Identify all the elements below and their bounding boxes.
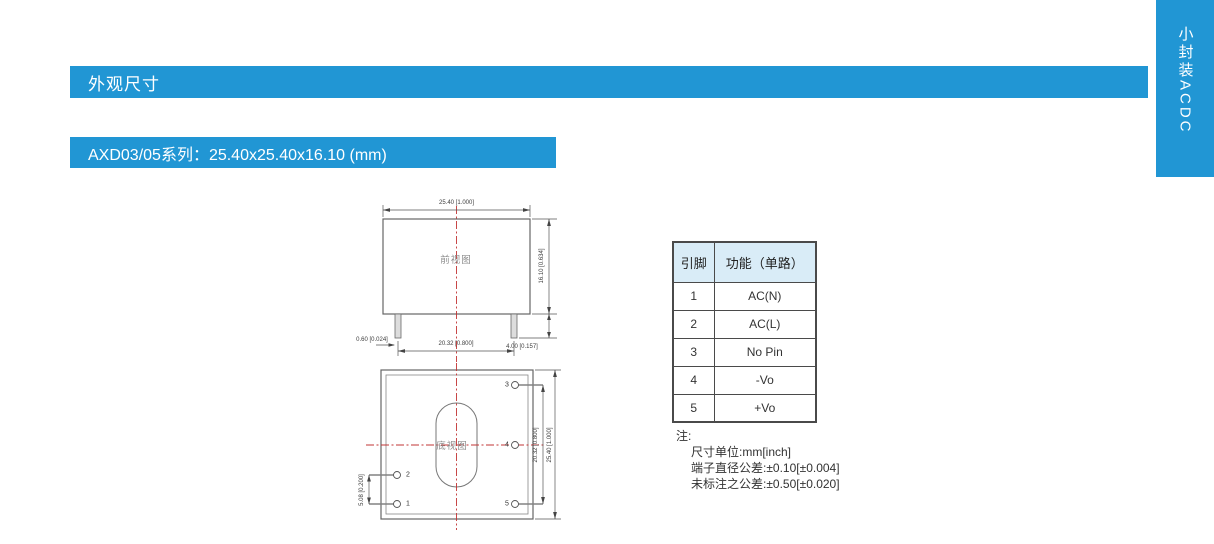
series-title: AXD03/05系列：25.40x25.40x16.10 (mm) bbox=[88, 141, 387, 165]
table-row: 2 AC(L) bbox=[673, 310, 816, 338]
datasheet-page: 外观尺寸 AXD03/05系列：25.40x25.40x16.10 (mm) 小… bbox=[0, 0, 1214, 544]
pin-5-number: 5 bbox=[505, 501, 509, 508]
arrowhead bbox=[389, 343, 396, 347]
series-header-bar: AXD03/05系列：25.40x25.40x16.10 (mm) bbox=[70, 137, 556, 168]
function-cell: AC(N) bbox=[714, 282, 816, 310]
dim-front-pin-span: 20.32 [0.800] bbox=[438, 341, 473, 347]
front-view-group bbox=[376, 205, 557, 362]
dim-front-height: 16.10 [0.634] bbox=[539, 248, 545, 283]
section-header-bar: 外观尺寸 bbox=[70, 66, 1148, 98]
front-view-label: 前视图 bbox=[440, 252, 472, 266]
side-tab-label: 小封装ACDC bbox=[1175, 26, 1196, 177]
function-column-header: 功能（单路） bbox=[714, 242, 816, 282]
arrowhead bbox=[547, 307, 551, 314]
table-row: 3 No Pin bbox=[673, 338, 816, 366]
arrowhead bbox=[547, 219, 551, 226]
pin-column-header: 引脚 bbox=[673, 242, 714, 282]
function-cell: +Vo bbox=[714, 394, 816, 422]
front-view-pin-left bbox=[395, 314, 401, 338]
arrowhead bbox=[547, 314, 551, 320]
pin-cell: 4 bbox=[673, 366, 714, 394]
pin-5-circle bbox=[512, 501, 519, 508]
notes-title: 注: bbox=[676, 428, 840, 444]
arrowhead bbox=[367, 498, 371, 505]
pin-cell: 1 bbox=[673, 282, 714, 310]
function-cell: No Pin bbox=[714, 338, 816, 366]
pin-1-number: 1 bbox=[406, 501, 410, 508]
arrowhead bbox=[523, 208, 530, 212]
arrowhead bbox=[541, 385, 545, 392]
front-view-dim-top bbox=[383, 205, 530, 217]
dim-bottom-body: 25.40 [1.000] bbox=[547, 427, 553, 462]
table-header-row: 引脚 功能（单路） bbox=[673, 242, 816, 282]
function-cell: -Vo bbox=[714, 366, 816, 394]
dim-bottom-pin-offset: 5.08 [0.200] bbox=[359, 474, 365, 506]
pin-4-circle bbox=[512, 442, 519, 449]
pin-3-number: 3 bbox=[505, 382, 509, 389]
note-line: 未标注之公差:±0.50[±0.020] bbox=[691, 476, 840, 492]
bottom-view-label: 底视图 bbox=[436, 438, 468, 452]
dim-front-pin-diameter: 0.60 [0.024] bbox=[356, 337, 388, 343]
pin-cell: 5 bbox=[673, 394, 714, 422]
side-tab-acdc[interactable]: 小封装ACDC bbox=[1156, 0, 1214, 177]
notes-block: 注: 尺寸单位:mm[inch] 端子直径公差:±0.10[±0.004] 未标… bbox=[676, 428, 840, 492]
arrowhead bbox=[383, 208, 390, 212]
front-view-dim-pinlen bbox=[519, 314, 557, 338]
pin-1-circle bbox=[394, 501, 401, 508]
table-row: 4 -Vo bbox=[673, 366, 816, 394]
arrowhead bbox=[553, 370, 557, 377]
pin-function-table: 引脚 功能（单路） 1 AC(N) 2 AC(L) 3 No Pin 4 -Vo bbox=[672, 241, 817, 423]
dim-bottom-pin-span: 20.32 [0.800] bbox=[533, 427, 539, 462]
dim-front-pin-length: 4.00 [0.157] bbox=[506, 344, 538, 350]
table-row: 5 +Vo bbox=[673, 394, 816, 422]
note-line: 尺寸单位:mm[inch] bbox=[691, 444, 840, 460]
table-row: 1 AC(N) bbox=[673, 282, 816, 310]
front-view-pin-right bbox=[511, 314, 517, 338]
arrowhead bbox=[541, 497, 545, 504]
note-line: 端子直径公差:±0.10[±0.004] bbox=[691, 460, 840, 476]
pin-2-number: 2 bbox=[406, 472, 410, 479]
section-title: 外观尺寸 bbox=[88, 70, 160, 95]
arrowhead bbox=[398, 349, 405, 353]
pin-4-number: 4 bbox=[505, 442, 509, 449]
pin-3-circle bbox=[512, 382, 519, 389]
dim-front-width: 25.40 [1.000] bbox=[439, 200, 474, 206]
pin-cell: 3 bbox=[673, 338, 714, 366]
function-cell: AC(L) bbox=[714, 310, 816, 338]
front-view-body bbox=[383, 219, 530, 314]
pin-2-circle bbox=[394, 472, 401, 479]
pin-cell: 2 bbox=[673, 310, 714, 338]
arrowhead bbox=[553, 512, 557, 519]
arrowhead bbox=[547, 332, 551, 338]
arrowhead bbox=[367, 475, 371, 482]
